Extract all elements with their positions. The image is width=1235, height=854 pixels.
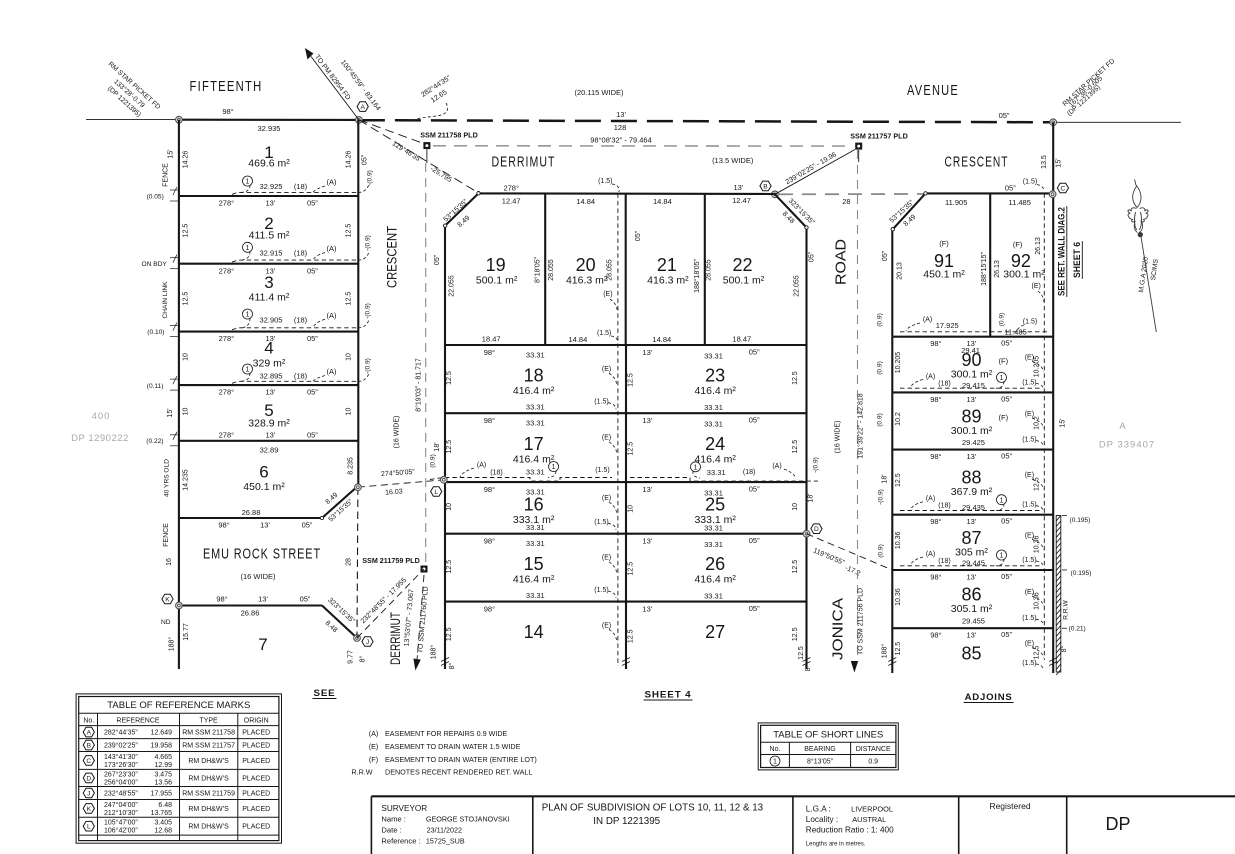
svg-text:278°: 278° <box>219 266 235 275</box>
svg-text:33.31: 33.31 <box>707 468 726 477</box>
svg-text:33.31: 33.31 <box>526 351 545 360</box>
svg-text:105°47'00”: 105°47'00” <box>104 819 138 827</box>
svg-text:256°04'00”: 256°04'00” <box>104 778 138 786</box>
svg-text:RM SSM 211758: RM SSM 211758 <box>182 730 235 737</box>
svg-text:No.: No. <box>83 717 94 724</box>
svg-text:12.5: 12.5 <box>895 473 902 487</box>
svg-text:(1.5): (1.5) <box>595 467 609 474</box>
svg-text:13': 13' <box>616 110 626 119</box>
svg-text:1: 1 <box>246 312 250 319</box>
svg-text:11.905: 11.905 <box>945 198 967 207</box>
svg-text:13': 13' <box>266 266 276 275</box>
svg-text:(E): (E) <box>602 555 611 562</box>
svg-text:8°19'03” - 81.717: 8°19'03” - 81.717 <box>415 358 423 412</box>
svg-text:(F): (F) <box>999 357 1009 366</box>
svg-text:14.84: 14.84 <box>652 335 671 344</box>
svg-text:(0.22): (0.22) <box>146 438 163 445</box>
svg-text:TABLE OF REFERENCE MARKS: TABLE OF REFERENCE MARKS <box>107 700 250 711</box>
svg-text:29.435: 29.435 <box>962 503 985 512</box>
svg-text:98°: 98° <box>484 605 495 614</box>
svg-text:98°: 98° <box>930 517 941 526</box>
svg-text:(0.195): (0.195) <box>1070 517 1091 524</box>
svg-text:No.: No. <box>770 746 781 753</box>
svg-text:(18): (18) <box>294 372 308 381</box>
svg-text:10.36: 10.36 <box>1034 535 1041 553</box>
svg-text:(1.5): (1.5) <box>1022 557 1036 564</box>
svg-text:05”: 05” <box>307 199 318 208</box>
svg-text:05”: 05” <box>307 388 318 397</box>
svg-text:23: 23 <box>705 366 725 386</box>
svg-text:(0.9): (0.9) <box>430 454 437 468</box>
svg-text:10: 10 <box>183 408 190 416</box>
svg-text:18': 18' <box>807 493 814 502</box>
svg-text:416.4 m²: 416.4 m² <box>513 574 555 586</box>
svg-text:EASEMENT FOR REPAIRS 0.9 WIDE: EASEMENT FOR REPAIRS 0.9 WIDE <box>385 729 508 738</box>
svg-text:98°: 98° <box>930 452 941 461</box>
svg-text:33.31: 33.31 <box>526 419 545 428</box>
svg-text:13.56: 13.56 <box>154 779 172 786</box>
svg-text:20.13: 20.13 <box>897 262 904 280</box>
svg-text:(A): (A) <box>327 178 338 187</box>
svg-text:12.5: 12.5 <box>792 440 799 454</box>
svg-text:A: A <box>87 730 92 737</box>
svg-text:6: 6 <box>259 463 268 482</box>
svg-text:DP 339407: DP 339407 <box>1099 440 1155 451</box>
svg-text:411.5 m²: 411.5 m² <box>249 230 290 242</box>
svg-text:05”: 05” <box>307 266 318 275</box>
svg-text:8°: 8° <box>359 655 367 662</box>
svg-text:-(0.9): -(0.9) <box>365 235 372 251</box>
svg-text:98°: 98° <box>484 537 495 546</box>
svg-text:12.5: 12.5 <box>895 642 902 656</box>
svg-text:87: 87 <box>961 528 981 548</box>
svg-text:15': 15' <box>167 408 174 417</box>
svg-text:33.31: 33.31 <box>704 524 723 533</box>
svg-text:23/11/2022: 23/11/2022 <box>427 826 462 835</box>
svg-text:13': 13' <box>967 517 977 526</box>
svg-text:SSM 211757 PLD: SSM 211757 PLD <box>850 132 908 141</box>
svg-text:12.5: 12.5 <box>446 627 453 641</box>
svg-text:(1.5): (1.5) <box>594 519 608 526</box>
svg-text:(E): (E) <box>1032 283 1041 290</box>
svg-text:18: 18 <box>524 366 544 386</box>
svg-text:1: 1 <box>246 367 250 374</box>
svg-text:B: B <box>87 742 92 749</box>
svg-text:416.4 m²: 416.4 m² <box>694 385 736 397</box>
svg-text:(E): (E) <box>1025 411 1034 418</box>
svg-text:11.485: 11.485 <box>1009 198 1031 207</box>
svg-text:15725_SUB: 15725_SUB <box>426 837 465 846</box>
svg-text:12.5: 12.5 <box>792 560 799 574</box>
svg-text:12.5: 12.5 <box>446 440 453 454</box>
svg-text:13': 13' <box>266 334 276 343</box>
svg-text:10.205: 10.205 <box>1034 356 1041 378</box>
svg-text:143°41'30”: 143°41'30” <box>104 753 138 761</box>
svg-text:10.205: 10.205 <box>895 352 902 374</box>
svg-text:247°04'00”: 247°04'00” <box>104 801 138 809</box>
svg-text:05”: 05” <box>434 254 441 265</box>
svg-text:05”: 05” <box>749 604 760 613</box>
svg-text:(E): (E) <box>1025 589 1034 596</box>
svg-text:13': 13' <box>260 521 270 530</box>
svg-text:416.4 m²: 416.4 m² <box>694 574 736 586</box>
svg-text:15.77: 15.77 <box>183 623 190 641</box>
svg-text:22: 22 <box>732 255 752 275</box>
svg-text:32.89: 32.89 <box>260 446 279 455</box>
svg-text:Locality :: Locality : <box>806 815 838 824</box>
svg-text:EASEMENT TO DRAIN WATER 1.5 WI: EASEMENT TO DRAIN WATER 1.5 WIDE <box>385 742 521 751</box>
svg-text:19: 19 <box>486 255 506 275</box>
svg-text:15: 15 <box>524 554 544 574</box>
svg-text:(18): (18) <box>938 380 950 387</box>
svg-text:32.895: 32.895 <box>260 372 283 381</box>
svg-text:12.5: 12.5 <box>628 629 635 643</box>
svg-text:26.13: 26.13 <box>994 260 1001 278</box>
svg-text:AUSTRAL: AUSTRAL <box>852 815 886 824</box>
svg-text:-(0.9): -(0.9) <box>877 489 884 505</box>
svg-text:13': 13' <box>967 395 977 404</box>
svg-text:40 YRS OLD: 40 YRS OLD <box>164 459 171 497</box>
svg-text:1: 1 <box>773 759 777 766</box>
svg-text:90: 90 <box>961 350 981 370</box>
svg-text:416.3 m²: 416.3 m² <box>566 275 608 287</box>
svg-text:ROAD: ROAD <box>833 239 850 285</box>
svg-text:86: 86 <box>961 585 981 605</box>
svg-text:(E): (E) <box>1025 532 1034 539</box>
svg-text:1: 1 <box>1000 375 1004 382</box>
svg-text:300.1 m²: 300.1 m² <box>951 369 993 381</box>
svg-text:328.9 m²: 328.9 m² <box>248 417 290 429</box>
svg-text:RM DH&W’S: RM DH&W’S <box>188 806 229 813</box>
svg-text:(13.5 WIDE): (13.5 WIDE) <box>712 156 754 165</box>
svg-text:33.31: 33.31 <box>526 403 545 412</box>
svg-text:33.31: 33.31 <box>704 352 723 361</box>
svg-text:12.5: 12.5 <box>792 627 799 641</box>
svg-text:12.5: 12.5 <box>628 442 635 456</box>
svg-text:(A): (A) <box>327 367 338 376</box>
svg-text:411.4 m²: 411.4 m² <box>249 292 290 304</box>
svg-text:(E): (E) <box>602 366 611 373</box>
svg-text:Registered: Registered <box>989 801 1030 811</box>
svg-text:32.935: 32.935 <box>258 124 281 133</box>
svg-text:12.5: 12.5 <box>346 224 353 238</box>
svg-text:12.5: 12.5 <box>628 373 635 387</box>
svg-text:191°39'22” - 142.818: 191°39'22” - 142.818 <box>857 393 865 458</box>
svg-text:1: 1 <box>1000 497 1004 504</box>
svg-text:K: K <box>165 596 170 603</box>
svg-text:(A): (A) <box>477 462 486 469</box>
svg-text:18': 18' <box>434 442 441 451</box>
svg-text:305 m²: 305 m² <box>955 546 988 558</box>
svg-text:SEE: SEE <box>314 688 336 699</box>
svg-text:-(0.9): -(0.9) <box>367 170 374 186</box>
svg-text:8°18'05”: 8°18'05” <box>534 256 542 283</box>
svg-text:98°08'32” - 79.464: 98°08'32” - 79.464 <box>590 136 652 145</box>
svg-text:A: A <box>360 104 365 111</box>
svg-text:(F): (F) <box>369 755 378 764</box>
svg-text:PLACED: PLACED <box>242 743 270 750</box>
svg-text:29.415: 29.415 <box>962 381 985 390</box>
svg-text:29.425: 29.425 <box>962 438 985 447</box>
svg-text:450.1 m²: 450.1 m² <box>243 481 285 493</box>
svg-text:278°: 278° <box>219 199 235 208</box>
svg-text:22.055: 22.055 <box>449 275 456 297</box>
svg-text:13': 13' <box>967 631 977 640</box>
svg-text:(18): (18) <box>294 182 308 191</box>
svg-text:(18): (18) <box>490 470 502 477</box>
svg-text:416.3 m²: 416.3 m² <box>647 275 689 287</box>
svg-text:28: 28 <box>346 558 353 566</box>
svg-text:98°: 98° <box>930 631 941 640</box>
svg-text:SUBDIVISION OF LOTS 10, 11, 12: SUBDIVISION OF LOTS 10, 11, 12 & 13 <box>587 803 764 814</box>
svg-text:26.88: 26.88 <box>242 508 261 517</box>
svg-text:416.4 m²: 416.4 m² <box>513 385 555 397</box>
svg-text:14.26: 14.26 <box>183 151 190 169</box>
svg-text:DP: DP <box>1106 814 1131 834</box>
svg-text:33.31: 33.31 <box>704 420 723 429</box>
svg-text:13': 13' <box>642 605 652 614</box>
svg-text:12.47: 12.47 <box>732 196 751 205</box>
svg-text:22.055: 22.055 <box>794 275 801 297</box>
svg-text:188°: 188° <box>168 637 176 652</box>
svg-text:05”: 05” <box>1001 517 1012 526</box>
svg-text:19.958: 19.958 <box>151 743 173 750</box>
svg-text:C: C <box>1061 185 1066 192</box>
svg-text:(0.9): (0.9) <box>877 413 884 427</box>
svg-text:TYPE: TYPE <box>199 717 218 724</box>
svg-text:-(0.9): -(0.9) <box>365 303 372 319</box>
svg-text:14.84: 14.84 <box>576 197 595 206</box>
svg-text:14.235: 14.235 <box>183 469 190 491</box>
svg-text:10.36: 10.36 <box>1034 592 1041 610</box>
svg-text:13': 13' <box>642 485 652 494</box>
svg-text:(0.21): (0.21) <box>1069 626 1086 633</box>
svg-text:JONICA: JONICA <box>830 598 847 660</box>
svg-text:(A): (A) <box>926 373 935 380</box>
svg-text:29.455: 29.455 <box>962 617 985 626</box>
svg-text:33.31: 33.31 <box>704 592 723 601</box>
svg-text:(A): (A) <box>772 463 781 470</box>
svg-text:(0.9): (0.9) <box>877 313 884 327</box>
svg-text:33.31: 33.31 <box>526 468 545 477</box>
svg-text:13.765: 13.765 <box>151 810 173 817</box>
svg-text:33.31: 33.31 <box>526 539 545 548</box>
svg-text:267°23'30”: 267°23'30” <box>104 770 138 778</box>
svg-text:12.649: 12.649 <box>151 730 173 737</box>
svg-text:89: 89 <box>961 407 981 427</box>
svg-text:(A): (A) <box>369 729 379 738</box>
svg-text:(18): (18) <box>938 503 950 510</box>
svg-text:367.9 m²: 367.9 m² <box>951 486 993 498</box>
svg-text:(E): (E) <box>1025 472 1034 479</box>
svg-text:13': 13' <box>266 199 276 208</box>
svg-text:11.485: 11.485 <box>1004 328 1026 337</box>
svg-text:(16 WIDE): (16 WIDE) <box>394 416 401 449</box>
svg-text:A: A <box>1119 421 1126 432</box>
svg-text:10: 10 <box>183 353 190 361</box>
svg-text:PLAN OF: PLAN OF <box>542 803 584 814</box>
svg-text:3.405: 3.405 <box>154 820 172 827</box>
svg-text:PLACED: PLACED <box>242 824 270 831</box>
svg-text:(F): (F) <box>1013 240 1023 249</box>
svg-text:L.G.A :: L.G.A : <box>806 805 831 814</box>
svg-text:DISTANCE: DISTANCE <box>856 746 891 753</box>
svg-text:L: L <box>434 489 438 496</box>
svg-text:17: 17 <box>524 434 544 454</box>
svg-text:GEORGE STOJANOVSKI: GEORGE STOJANOVSKI <box>426 815 510 824</box>
svg-text:12.5: 12.5 <box>1034 477 1041 491</box>
svg-text:RM SSM 211757: RM SSM 211757 <box>182 743 235 750</box>
svg-text:416.4 m²: 416.4 m² <box>694 454 736 466</box>
svg-text:98°: 98° <box>222 107 233 116</box>
svg-text:27: 27 <box>705 622 725 642</box>
svg-text:(0.10): (0.10) <box>147 329 164 336</box>
svg-text:05”: 05” <box>749 348 760 357</box>
svg-text:(18): (18) <box>294 315 308 324</box>
svg-text:33.31: 33.31 <box>526 591 545 600</box>
svg-text:TO SSM 211756 PLD: TO SSM 211756 PLD <box>858 588 865 655</box>
svg-text:500.1 m²: 500.1 m² <box>476 275 518 287</box>
svg-text:98°: 98° <box>218 521 229 530</box>
svg-text:13': 13' <box>734 183 744 192</box>
svg-text:SHEET 4: SHEET 4 <box>645 690 692 701</box>
svg-text:8°: 8° <box>448 662 456 669</box>
svg-text:10: 10 <box>346 353 353 361</box>
svg-text:SURVEYOR: SURVEYOR <box>381 804 427 813</box>
svg-text:05”: 05” <box>999 111 1010 120</box>
svg-text:98°: 98° <box>930 573 941 582</box>
svg-text:12.5: 12.5 <box>183 292 190 306</box>
svg-text:PLACED: PLACED <box>242 758 270 765</box>
svg-text:12.5: 12.5 <box>446 560 453 574</box>
svg-text:12.68: 12.68 <box>154 828 172 835</box>
svg-text:ON BDY: ON BDY <box>142 261 168 268</box>
svg-text:05”: 05” <box>1001 452 1012 461</box>
svg-text:D: D <box>86 775 91 782</box>
svg-text:278°: 278° <box>503 183 519 192</box>
svg-text:232°48'55”: 232°48'55” <box>104 790 138 798</box>
svg-text:1: 1 <box>246 179 250 186</box>
svg-text:05”: 05” <box>749 416 760 425</box>
svg-text:RM DH&W’S: RM DH&W’S <box>188 758 229 765</box>
svg-text:1: 1 <box>694 464 698 471</box>
svg-text:SSM 211759 PLD: SSM 211759 PLD <box>362 556 420 565</box>
svg-text:05”: 05” <box>1005 184 1016 193</box>
svg-text:13': 13' <box>642 416 652 425</box>
svg-text:DERRIMUT: DERRIMUT <box>492 155 556 171</box>
svg-text:13': 13' <box>266 388 276 397</box>
svg-text:469.6 m²: 469.6 m² <box>248 158 290 170</box>
svg-text:DP 1290222: DP 1290222 <box>71 433 129 444</box>
svg-text:88: 88 <box>961 468 981 488</box>
svg-text:(1.5): (1.5) <box>1023 179 1037 186</box>
svg-text:(1.5): (1.5) <box>594 399 608 406</box>
svg-text:SEE RET. WALL DIAG.2: SEE RET. WALL DIAG.2 <box>1057 207 1067 296</box>
svg-text:(1.5): (1.5) <box>1022 615 1036 622</box>
svg-text:(A): (A) <box>926 551 935 558</box>
svg-text:(0.9): (0.9) <box>998 313 1005 327</box>
svg-text:500.1 m²: 500.1 m² <box>723 275 765 287</box>
svg-text:15': 15' <box>1060 418 1067 427</box>
svg-text:32.925: 32.925 <box>260 182 283 191</box>
svg-text:16: 16 <box>166 558 173 566</box>
svg-text:J: J <box>366 639 369 646</box>
svg-text:3: 3 <box>264 273 273 292</box>
svg-text:20: 20 <box>576 255 596 275</box>
svg-text:12.47: 12.47 <box>502 197 521 206</box>
svg-text:ORIGIN: ORIGIN <box>244 717 269 724</box>
svg-text:10.36: 10.36 <box>895 588 902 606</box>
svg-text:12.5: 12.5 <box>346 292 353 306</box>
svg-text:450.1 m²: 450.1 m² <box>923 269 965 281</box>
svg-text:LIVERPOOL: LIVERPOOL <box>851 805 893 814</box>
svg-text:28.055: 28.055 <box>706 259 713 281</box>
svg-text:(E): (E) <box>602 435 611 442</box>
svg-text:05”: 05” <box>302 521 313 530</box>
svg-text:13': 13' <box>967 452 977 461</box>
svg-text:10: 10 <box>792 503 799 511</box>
svg-text:10: 10 <box>346 408 353 416</box>
svg-text:12.5: 12.5 <box>446 371 453 385</box>
svg-text:10.2: 10.2 <box>1034 416 1041 430</box>
svg-text:32.905: 32.905 <box>260 315 283 324</box>
svg-text:188°15'15”: 188°15'15” <box>980 251 988 285</box>
svg-text:FENCE: FENCE <box>163 523 170 547</box>
svg-text:FIFTEENTH: FIFTEENTH <box>190 79 263 95</box>
svg-text:RM DH&W’S: RM DH&W’S <box>188 824 229 831</box>
svg-text:CRESCENT: CRESCENT <box>945 155 1009 171</box>
svg-text:14.84: 14.84 <box>569 335 588 344</box>
svg-text:(1.5): (1.5) <box>597 330 611 337</box>
svg-text:1: 1 <box>246 245 250 252</box>
svg-text:05”: 05” <box>1001 394 1012 403</box>
svg-text:28.055: 28.055 <box>548 259 555 281</box>
svg-text:12.5: 12.5 <box>183 224 190 238</box>
svg-text:(0.9): (0.9) <box>877 361 884 375</box>
svg-text:Name :: Name : <box>381 815 405 824</box>
svg-text:(E): (E) <box>602 495 611 502</box>
svg-text:05”: 05” <box>307 334 318 343</box>
svg-text:13': 13' <box>642 537 652 546</box>
svg-text:18.47: 18.47 <box>482 335 501 344</box>
svg-text:1: 1 <box>552 464 556 471</box>
svg-text:12.5: 12.5 <box>628 562 635 576</box>
svg-text:15': 15' <box>168 149 175 158</box>
svg-text:300.1 m²: 300.1 m² <box>1003 269 1045 281</box>
svg-text:98°: 98° <box>484 416 495 425</box>
svg-text:8°: 8° <box>804 664 812 671</box>
svg-text:282°44'35”: 282°44'35” <box>104 729 138 737</box>
svg-text:AVENUE: AVENUE <box>907 83 959 99</box>
svg-text:26: 26 <box>705 554 725 574</box>
svg-text:1: 1 <box>1000 553 1004 560</box>
svg-text:329 m²: 329 m² <box>253 357 286 369</box>
svg-text:16: 16 <box>524 494 544 514</box>
svg-text:DENOTES RECENT RENDERED RET. W: DENOTES RECENT RENDERED RET. WALL <box>385 768 532 777</box>
svg-text:12.5: 12.5 <box>792 371 799 385</box>
svg-text:9.77: 9.77 <box>348 650 355 664</box>
svg-text:SHEET 6: SHEET 6 <box>1072 242 1082 278</box>
svg-text:(1.5): (1.5) <box>1022 379 1036 386</box>
svg-text:13': 13' <box>266 431 276 440</box>
svg-text:0.9: 0.9 <box>868 759 878 766</box>
svg-text:3.475: 3.475 <box>154 771 172 778</box>
svg-text:416.4 m²: 416.4 m² <box>513 454 555 466</box>
svg-text:188°: 188° <box>430 645 438 660</box>
svg-text:26.86: 26.86 <box>241 609 260 618</box>
svg-text:188°: 188° <box>881 644 889 659</box>
svg-text:TABLE OF SHORT LINES: TABLE OF SHORT LINES <box>773 730 883 741</box>
